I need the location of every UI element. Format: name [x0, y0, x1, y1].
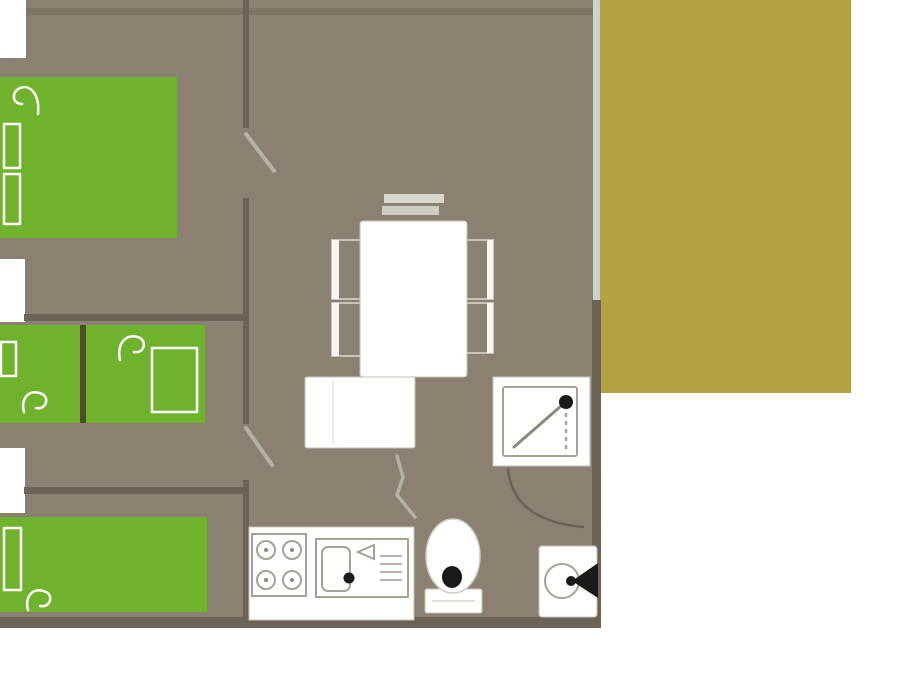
shower	[493, 377, 590, 466]
wall-bedroom2-bedroom3	[24, 487, 248, 494]
toilet	[425, 519, 482, 613]
bunk-bed-right	[86, 325, 205, 423]
wall-top	[26, 8, 593, 15]
outside-bottom	[0, 628, 900, 675]
washbasin-faucet-dot	[566, 576, 576, 586]
terrace-glass-wall	[593, 0, 600, 302]
double-bed-top	[0, 77, 177, 238]
toilet-drain	[442, 566, 462, 588]
sink-drain	[344, 573, 355, 584]
shower-head	[559, 395, 573, 409]
wall-corridor-lower	[243, 480, 249, 620]
floor-plan	[0, 0, 900, 675]
double-bed-bottom	[0, 517, 207, 612]
bunk-divider	[80, 325, 86, 423]
left-window-2	[0, 259, 25, 322]
wall-corridor-upper	[243, 0, 249, 128]
wall-corridor-middle	[243, 198, 249, 424]
bench-lower	[382, 206, 439, 215]
terrace	[600, 0, 851, 393]
kitchen-block	[249, 527, 414, 620]
left-window-3	[0, 448, 25, 513]
sofa-unit	[305, 377, 415, 448]
floor-plan-canvas	[0, 0, 900, 675]
washbasin	[539, 546, 598, 617]
bench-upper	[384, 194, 444, 203]
wall-bedroom1-bedroom2	[24, 314, 248, 321]
kitchen-counter	[249, 527, 414, 620]
dining-table	[360, 221, 467, 377]
left-window-1	[0, 0, 26, 58]
